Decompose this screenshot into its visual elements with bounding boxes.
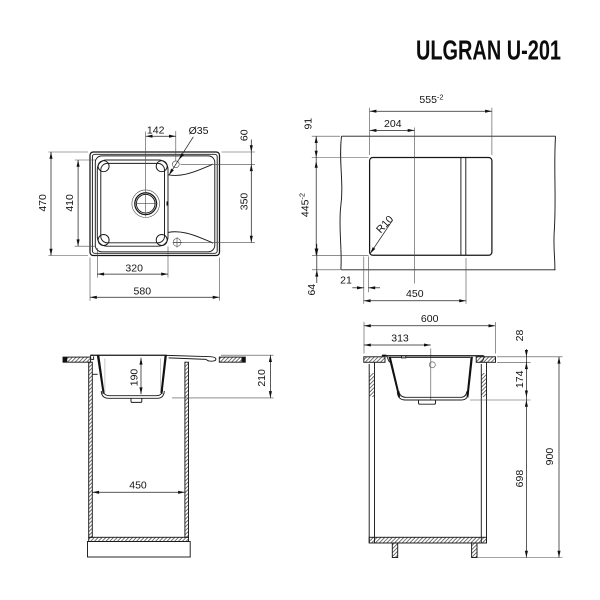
svg-text:320: 320 [125, 262, 143, 274]
svg-text:410: 410 [64, 194, 76, 212]
svg-text:142: 142 [147, 124, 165, 136]
svg-text:900: 900 [544, 448, 556, 466]
svg-text:28: 28 [514, 330, 526, 342]
svg-text:174: 174 [514, 370, 526, 388]
svg-text:204: 204 [384, 118, 402, 130]
svg-text:580: 580 [134, 285, 152, 297]
svg-text:91: 91 [303, 118, 315, 130]
svg-text:600: 600 [421, 313, 439, 325]
svg-text:60: 60 [239, 129, 251, 141]
svg-text:313: 313 [391, 332, 409, 344]
svg-text:350: 350 [239, 193, 251, 211]
svg-text:ULGRAN U-201: ULGRAN U-201 [416, 35, 561, 66]
svg-text:450: 450 [129, 480, 147, 492]
svg-text:698: 698 [514, 470, 526, 488]
svg-text:Ø35: Ø35 [189, 125, 209, 137]
svg-text:210: 210 [256, 369, 268, 387]
svg-text:64: 64 [306, 284, 318, 296]
svg-text:470: 470 [37, 194, 49, 212]
svg-text:190: 190 [128, 369, 140, 387]
svg-text:450: 450 [406, 288, 424, 300]
svg-text:21: 21 [340, 275, 352, 287]
